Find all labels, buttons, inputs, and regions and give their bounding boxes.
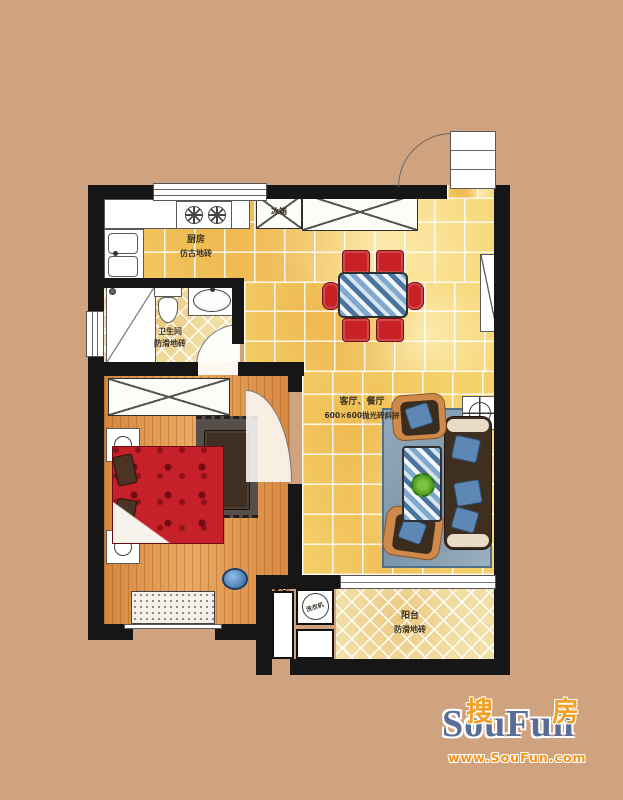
toilet <box>154 286 184 326</box>
bed-sheet-fold <box>113 501 171 543</box>
utility-cabinet <box>272 591 294 659</box>
coffee-table <box>402 446 442 522</box>
bathroom-name: 卫生间 <box>158 327 182 336</box>
shower-head-icon <box>109 288 116 295</box>
bathroom-window <box>86 311 104 357</box>
sofa <box>444 416 492 550</box>
washer-box: 洗衣机 <box>296 589 334 625</box>
bay-window-sill <box>124 624 222 629</box>
wall <box>256 589 272 675</box>
wall <box>290 659 510 675</box>
watermark-zh-second: 房 <box>552 690 579 729</box>
utility-box <box>296 629 334 659</box>
wall <box>232 278 244 344</box>
wall <box>256 575 340 589</box>
toilet-bowl <box>158 297 178 323</box>
sink-basin <box>108 233 138 254</box>
wall <box>265 185 447 199</box>
sofa-pillow <box>450 506 479 534</box>
bathroom-label: 卫生间 防滑地砖 <box>126 326 214 350</box>
dining-chair <box>376 318 404 342</box>
sofa-pillow <box>453 479 483 507</box>
stove <box>176 201 232 229</box>
bed <box>112 446 224 544</box>
dining-chair <box>376 250 404 274</box>
wardrobe-box <box>108 378 230 416</box>
shower-area <box>106 285 156 363</box>
balcony-name: 阳台 <box>401 611 419 621</box>
plant-icon <box>411 473 435 497</box>
living-floor-note: 600×600抛光砖斜拼 <box>310 410 414 421</box>
bed-pillow <box>112 453 138 487</box>
living-name: 客厅、餐厅 <box>339 397 384 407</box>
sink-basin <box>108 256 138 277</box>
wall <box>104 278 238 288</box>
dining-chair <box>342 250 370 274</box>
wall <box>88 362 198 376</box>
dining-chair <box>342 318 370 342</box>
bathroom-floor-note: 防滑地砖 <box>126 338 214 350</box>
door-threshold <box>198 363 238 375</box>
kitchen-window <box>153 183 267 201</box>
soufun-watermark: 搜 房 SouFun www.SouFun.com <box>440 690 620 768</box>
stove-burner-icon <box>208 206 226 224</box>
sofa-armrest <box>447 534 489 547</box>
balcony-floor-note: 防滑地砖 <box>368 624 452 636</box>
wall <box>494 185 510 675</box>
wall <box>215 624 262 640</box>
wall <box>288 484 302 575</box>
faucet-icon <box>113 251 118 256</box>
entry-door-arc <box>398 133 452 187</box>
kitchen-name: 厨房 <box>187 235 205 245</box>
bath-sink-counter <box>188 284 236 316</box>
watermark-zh-first: 搜 <box>466 690 493 729</box>
entry-door-leaf <box>450 131 496 189</box>
bath-sink-basin <box>193 289 231 312</box>
wall <box>288 362 302 392</box>
living-label: 客厅、餐厅 600×600抛光砖斜拼 <box>310 396 414 421</box>
vase-icon <box>222 568 248 590</box>
watermark-url: www.SouFun.com <box>448 750 587 765</box>
bay-window <box>131 591 215 624</box>
dining-chair <box>406 282 424 310</box>
kitchen-floor-note: 仿古地砖 <box>148 248 244 260</box>
kitchen-label: 厨房 仿古地砖 <box>148 234 244 260</box>
sofa-armrest <box>447 419 489 432</box>
stove-burner-icon <box>185 206 203 224</box>
balcony-sliding-door <box>340 575 496 589</box>
balcony-label: 阳台 防滑地砖 <box>368 610 452 636</box>
fridge-label: 冰箱 <box>257 206 301 218</box>
floor-plan-canvas: 冰箱 <box>0 0 623 800</box>
kitchen-sink-counter <box>104 229 144 279</box>
wall <box>88 185 104 640</box>
dining-table <box>338 272 408 318</box>
sofa-pillow <box>451 435 481 464</box>
